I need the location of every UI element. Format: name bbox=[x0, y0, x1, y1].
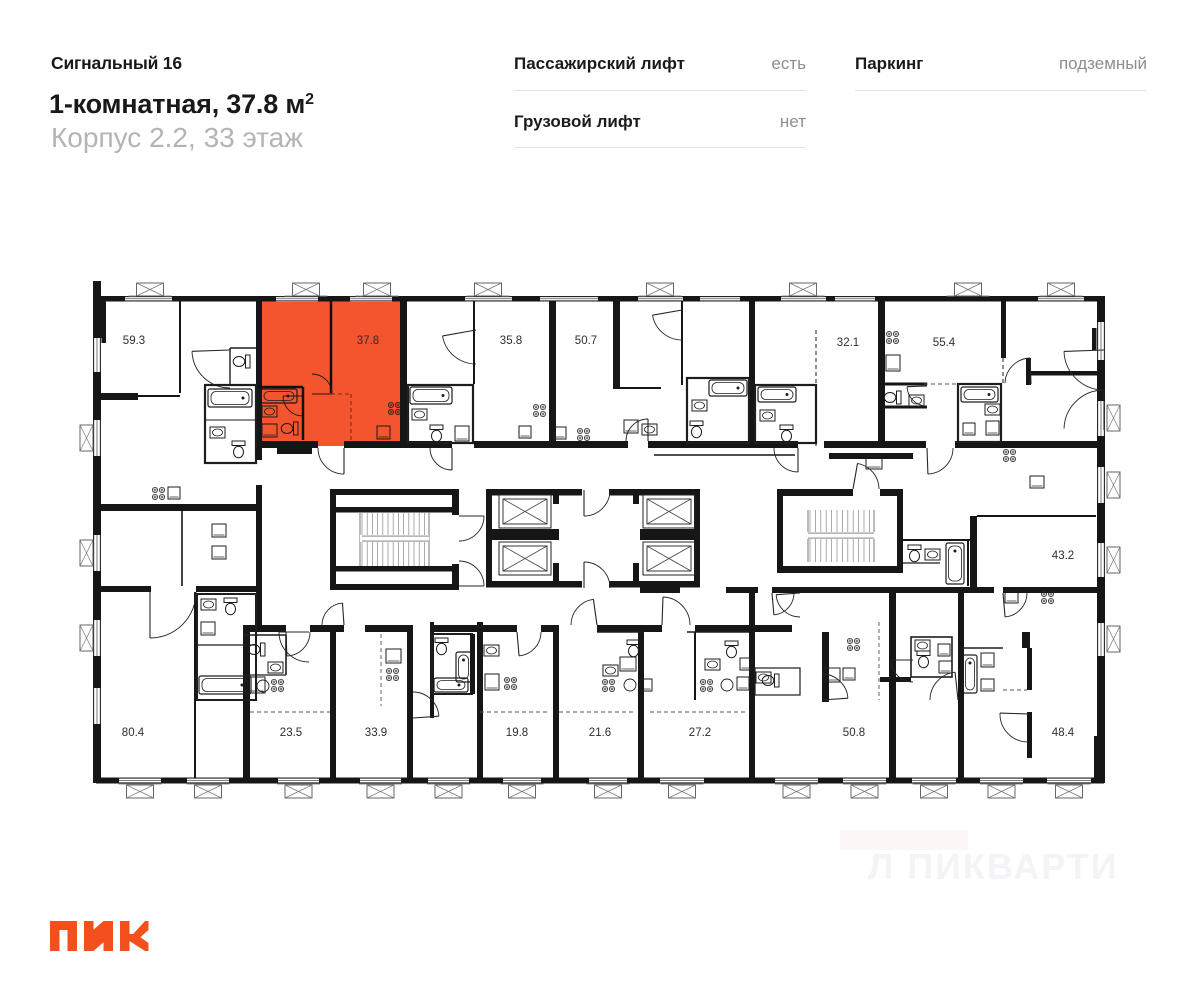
svg-text:43.2: 43.2 bbox=[1052, 550, 1074, 562]
svg-text:32.1: 32.1 bbox=[837, 337, 859, 349]
svg-text:48.4: 48.4 bbox=[1052, 727, 1075, 739]
svg-text:59.3: 59.3 bbox=[123, 335, 145, 347]
svg-text:27.2: 27.2 bbox=[689, 727, 711, 739]
svg-text:80.4: 80.4 bbox=[122, 727, 145, 739]
svg-text:35.8: 35.8 bbox=[500, 335, 522, 347]
svg-text:55.4: 55.4 bbox=[933, 337, 956, 349]
svg-text:33.9: 33.9 bbox=[365, 727, 387, 739]
svg-text:50.7: 50.7 bbox=[575, 335, 597, 347]
svg-text:21.6: 21.6 bbox=[589, 727, 611, 739]
svg-text:37.8: 37.8 bbox=[357, 335, 379, 347]
svg-text:50.8: 50.8 bbox=[843, 727, 865, 739]
svg-text:19.8: 19.8 bbox=[506, 727, 528, 739]
svg-text:23.5: 23.5 bbox=[280, 727, 302, 739]
